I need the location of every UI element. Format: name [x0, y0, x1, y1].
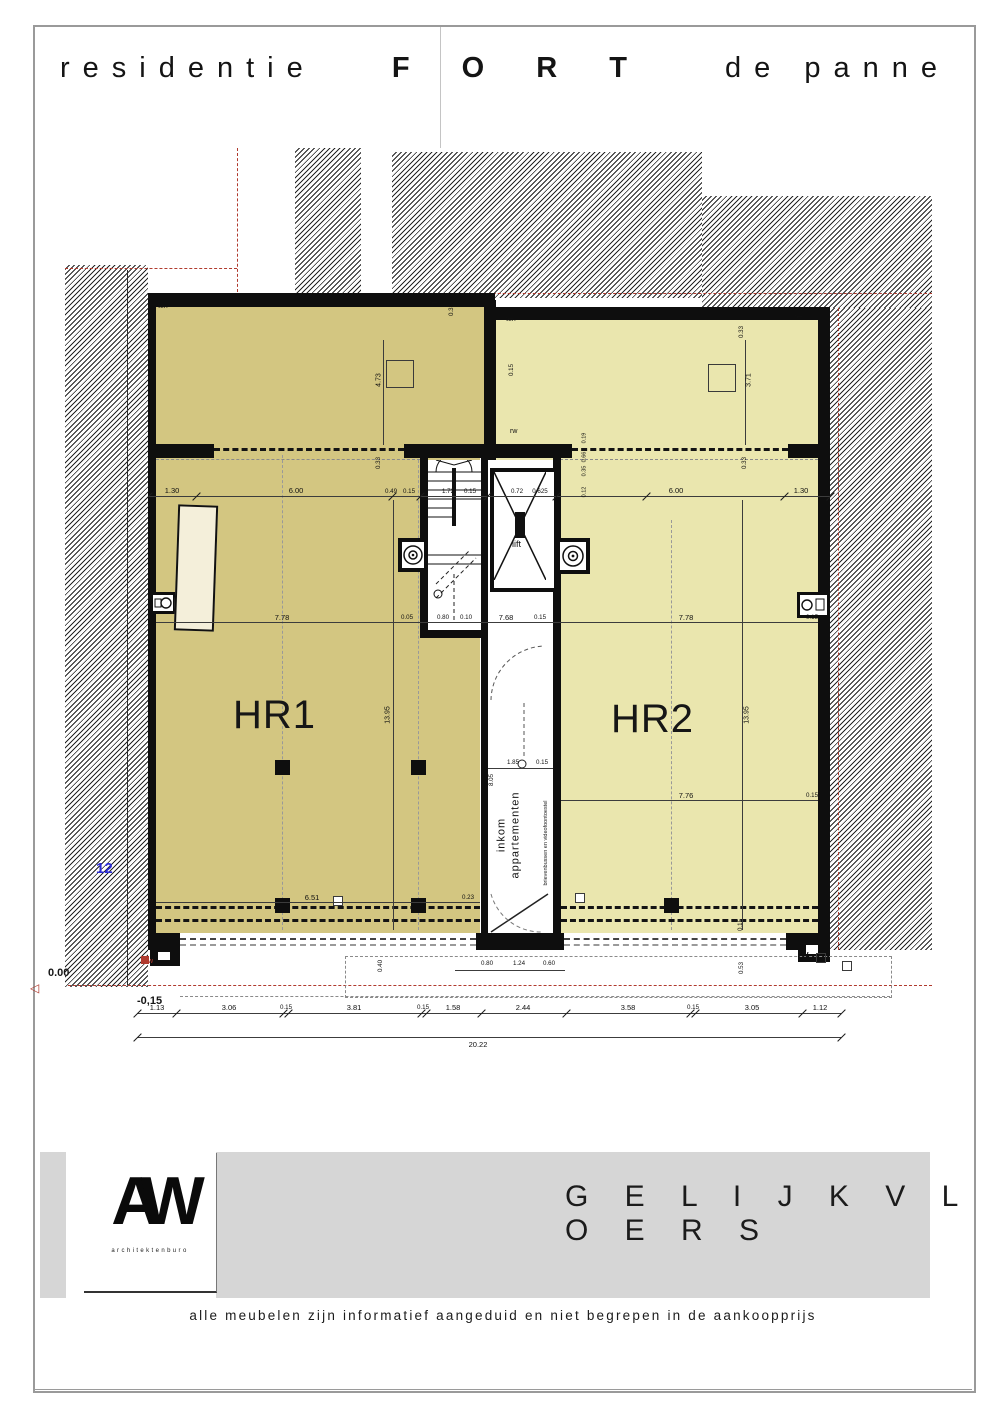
rw-label-2: rw: [798, 950, 809, 959]
dimline-entrance: [455, 970, 565, 971]
level-marker-icon: ◁: [30, 981, 39, 995]
red-line-h1: [65, 268, 237, 269]
wall-mid-a: [148, 444, 214, 458]
wall-top-hr2: [495, 307, 830, 320]
wall-left-main: [148, 450, 156, 947]
canopy-dash-2: [561, 906, 818, 909]
dim-label: 0.49: [385, 489, 397, 495]
hatch-right-band: [830, 308, 932, 950]
glazing-1: [180, 938, 476, 940]
dim-label: 7.76: [679, 792, 694, 800]
spot-left: [398, 538, 428, 572]
dim-label: 4.73: [376, 373, 383, 387]
dim-label: 0.15: [534, 615, 546, 621]
dim-label: 1.24: [513, 961, 525, 967]
dim-label: 3.06: [222, 1004, 237, 1012]
overhang-dash-1: [214, 448, 404, 451]
dim-label: 3.81: [347, 1004, 362, 1012]
dim-label: 0.23: [462, 895, 474, 901]
dim-label: 7.68: [499, 614, 514, 622]
dim-label: 0.15: [509, 364, 515, 376]
dim-label: 0.15: [687, 1005, 699, 1011]
boundary-line-left: [127, 270, 128, 985]
dim-label: 1.13: [150, 1004, 165, 1012]
dim-label: 6.51: [305, 894, 320, 902]
dim-label: 0.15: [738, 919, 744, 931]
wall-mid-b: [404, 444, 572, 458]
logo-box: AW: [84, 1153, 217, 1293]
dim-label: 13.95: [385, 706, 392, 724]
dimline-total: [137, 1037, 841, 1038]
awning-outline: [345, 956, 892, 998]
terrace-hatch-square-right: [708, 364, 736, 392]
dim-label: 0.15: [536, 760, 548, 766]
rw-square-2: [842, 961, 852, 971]
sheet-bottom-line: [33, 1389, 972, 1390]
stairs-icon: [428, 460, 481, 630]
door-leaf-hr1: [174, 504, 218, 631]
dimline-v-terr2: [745, 340, 746, 445]
dimline-hr2: [561, 800, 818, 801]
column: [275, 760, 290, 775]
dim-label: 6.00: [289, 487, 304, 495]
dimline-mid: [148, 496, 830, 497]
dim-label: 0.80: [481, 961, 493, 967]
disclaimer-text: alle meubelen zijn informatief aangeduid…: [189, 1308, 816, 1323]
hr2-terrace: [496, 315, 818, 460]
wall-right-main: [818, 455, 830, 947]
hatch-top-strip: [392, 152, 702, 298]
dim-label: 0.80: [437, 615, 449, 621]
canopy-dash-1: [156, 906, 480, 909]
terr-label-3: terr: [506, 316, 517, 323]
wall-left-terrace: [148, 293, 156, 458]
wall-stair-bottom: [420, 630, 488, 638]
dim-label: 1.85: [507, 760, 519, 766]
dimline-v-hr1: [393, 500, 394, 930]
dim-label: 0.53: [739, 962, 745, 974]
glazing-3: [180, 944, 476, 946]
dim-label: 1.30: [794, 487, 809, 495]
terrace-hatch-square-left: [386, 360, 414, 388]
wall-terrace-divider: [484, 300, 496, 460]
dim-label: 0.33: [742, 457, 748, 469]
wall-top-hr1: [148, 293, 495, 307]
dim-label: 0.625: [532, 489, 547, 495]
dim-label: 13.95: [744, 706, 751, 724]
floor-title: G E L I J K V L O E R S: [565, 1180, 1006, 1248]
parcel-number: 12: [96, 860, 113, 877]
dim-label: 0.35: [582, 466, 588, 477]
dimline-v-terr1: [383, 340, 384, 445]
column: [411, 898, 426, 913]
wall-right-terrace: [818, 307, 830, 460]
awning-line: [180, 996, 890, 997]
dim-label: 0.60: [543, 961, 555, 967]
dim-label: 0.10: [460, 615, 472, 621]
floor-plan: lift inkom appartementen brievenbussen e…: [0, 0, 1006, 1100]
column: [275, 898, 290, 913]
dim-label: 0.33: [449, 304, 455, 316]
dim-label: 2.44: [516, 1004, 531, 1012]
grid-line-2: [418, 455, 419, 930]
dim-label: 0.33: [376, 457, 382, 469]
dim-label: 3.58: [621, 1004, 636, 1012]
dim-label: 0.66: [582, 452, 588, 463]
glazing-2: [564, 938, 786, 940]
room-label-hr1: HR1: [233, 693, 316, 738]
terr-label-4: terr: [795, 314, 806, 321]
dim-label: 0.40: [378, 960, 384, 972]
overhang-thin-2: [560, 459, 818, 460]
dim-label: 0.33: [739, 326, 745, 338]
logo-subtitle: architektenburo: [111, 1248, 188, 1254]
canopy-post-1: [333, 896, 343, 906]
dim-label: 0.15: [403, 489, 415, 495]
level-zero: 0.00: [48, 967, 69, 979]
dimline-bottom: [137, 1013, 841, 1014]
column: [664, 898, 679, 913]
hr2-room: [561, 455, 818, 933]
dim-label: 0.15: [464, 489, 476, 495]
room-label-hr2: HR2: [611, 697, 694, 742]
mailbox-note: brievenbussen en videofoontoestel: [543, 800, 549, 885]
dim-label: 1.30: [165, 487, 180, 495]
aw-logo: AW: [111, 1162, 189, 1240]
hatch-left-band: [65, 265, 148, 987]
rw-square-1: [816, 953, 826, 963]
wall-core-mid: [481, 455, 488, 947]
rw-label-1: rw: [510, 428, 517, 435]
entrance-label-line2: appartementen: [509, 792, 523, 879]
dim-label: 0.05: [401, 615, 413, 621]
entrance-label: inkom appartementen: [495, 792, 523, 879]
dim-label: 0.12: [582, 487, 588, 498]
hr1-terrace: [150, 300, 484, 450]
dim-label: 0.72: [511, 489, 523, 495]
dimline-corridor: [488, 768, 553, 769]
dim-label-total: 20.22: [469, 1041, 488, 1049]
canopy-post-2: [575, 893, 585, 903]
dim-label: 0.19: [582, 433, 588, 444]
canopy-dash-4: [561, 919, 818, 922]
overhang-dash-2: [572, 448, 788, 451]
spot-right: [556, 538, 590, 574]
dimline-hr1: [156, 902, 480, 903]
dim-label: 3.05: [745, 1004, 760, 1012]
dim-label: 1.12: [813, 1004, 828, 1012]
dim-label: 0.15: [280, 1005, 292, 1011]
footer-gray-strip: [40, 1152, 66, 1298]
dimline-row-a: [156, 622, 818, 623]
dim-label: 0.15: [806, 615, 818, 621]
hatch-top-right: [702, 196, 932, 308]
dim-label: 7.78: [679, 614, 694, 622]
corner-detail-left-inner: [158, 952, 170, 960]
hatch-top-col: [295, 148, 361, 298]
dim-label: 1.72: [442, 489, 454, 495]
dim-label: 6.00: [669, 487, 684, 495]
entrance-label-line1: inkom: [495, 792, 509, 879]
dim-label: 0.15: [806, 793, 818, 799]
dim-label: 8.05: [489, 774, 495, 786]
terr-label-1: terr: [158, 303, 169, 310]
red-line-v2: [838, 308, 839, 950]
glazing-4: [564, 944, 786, 946]
wall-fixture-left: [150, 592, 176, 614]
terr-label-2: terr: [430, 300, 441, 307]
dim-label: 1.58: [446, 1004, 461, 1012]
fw-label: fw: [146, 958, 153, 965]
dim-label: 0.15: [417, 1005, 429, 1011]
lift-label: lift: [512, 540, 521, 549]
column: [411, 760, 426, 775]
canopy-dash-3: [156, 919, 480, 922]
dim-label: 7.78: [275, 614, 290, 622]
dim-label: 3.71: [746, 373, 753, 387]
